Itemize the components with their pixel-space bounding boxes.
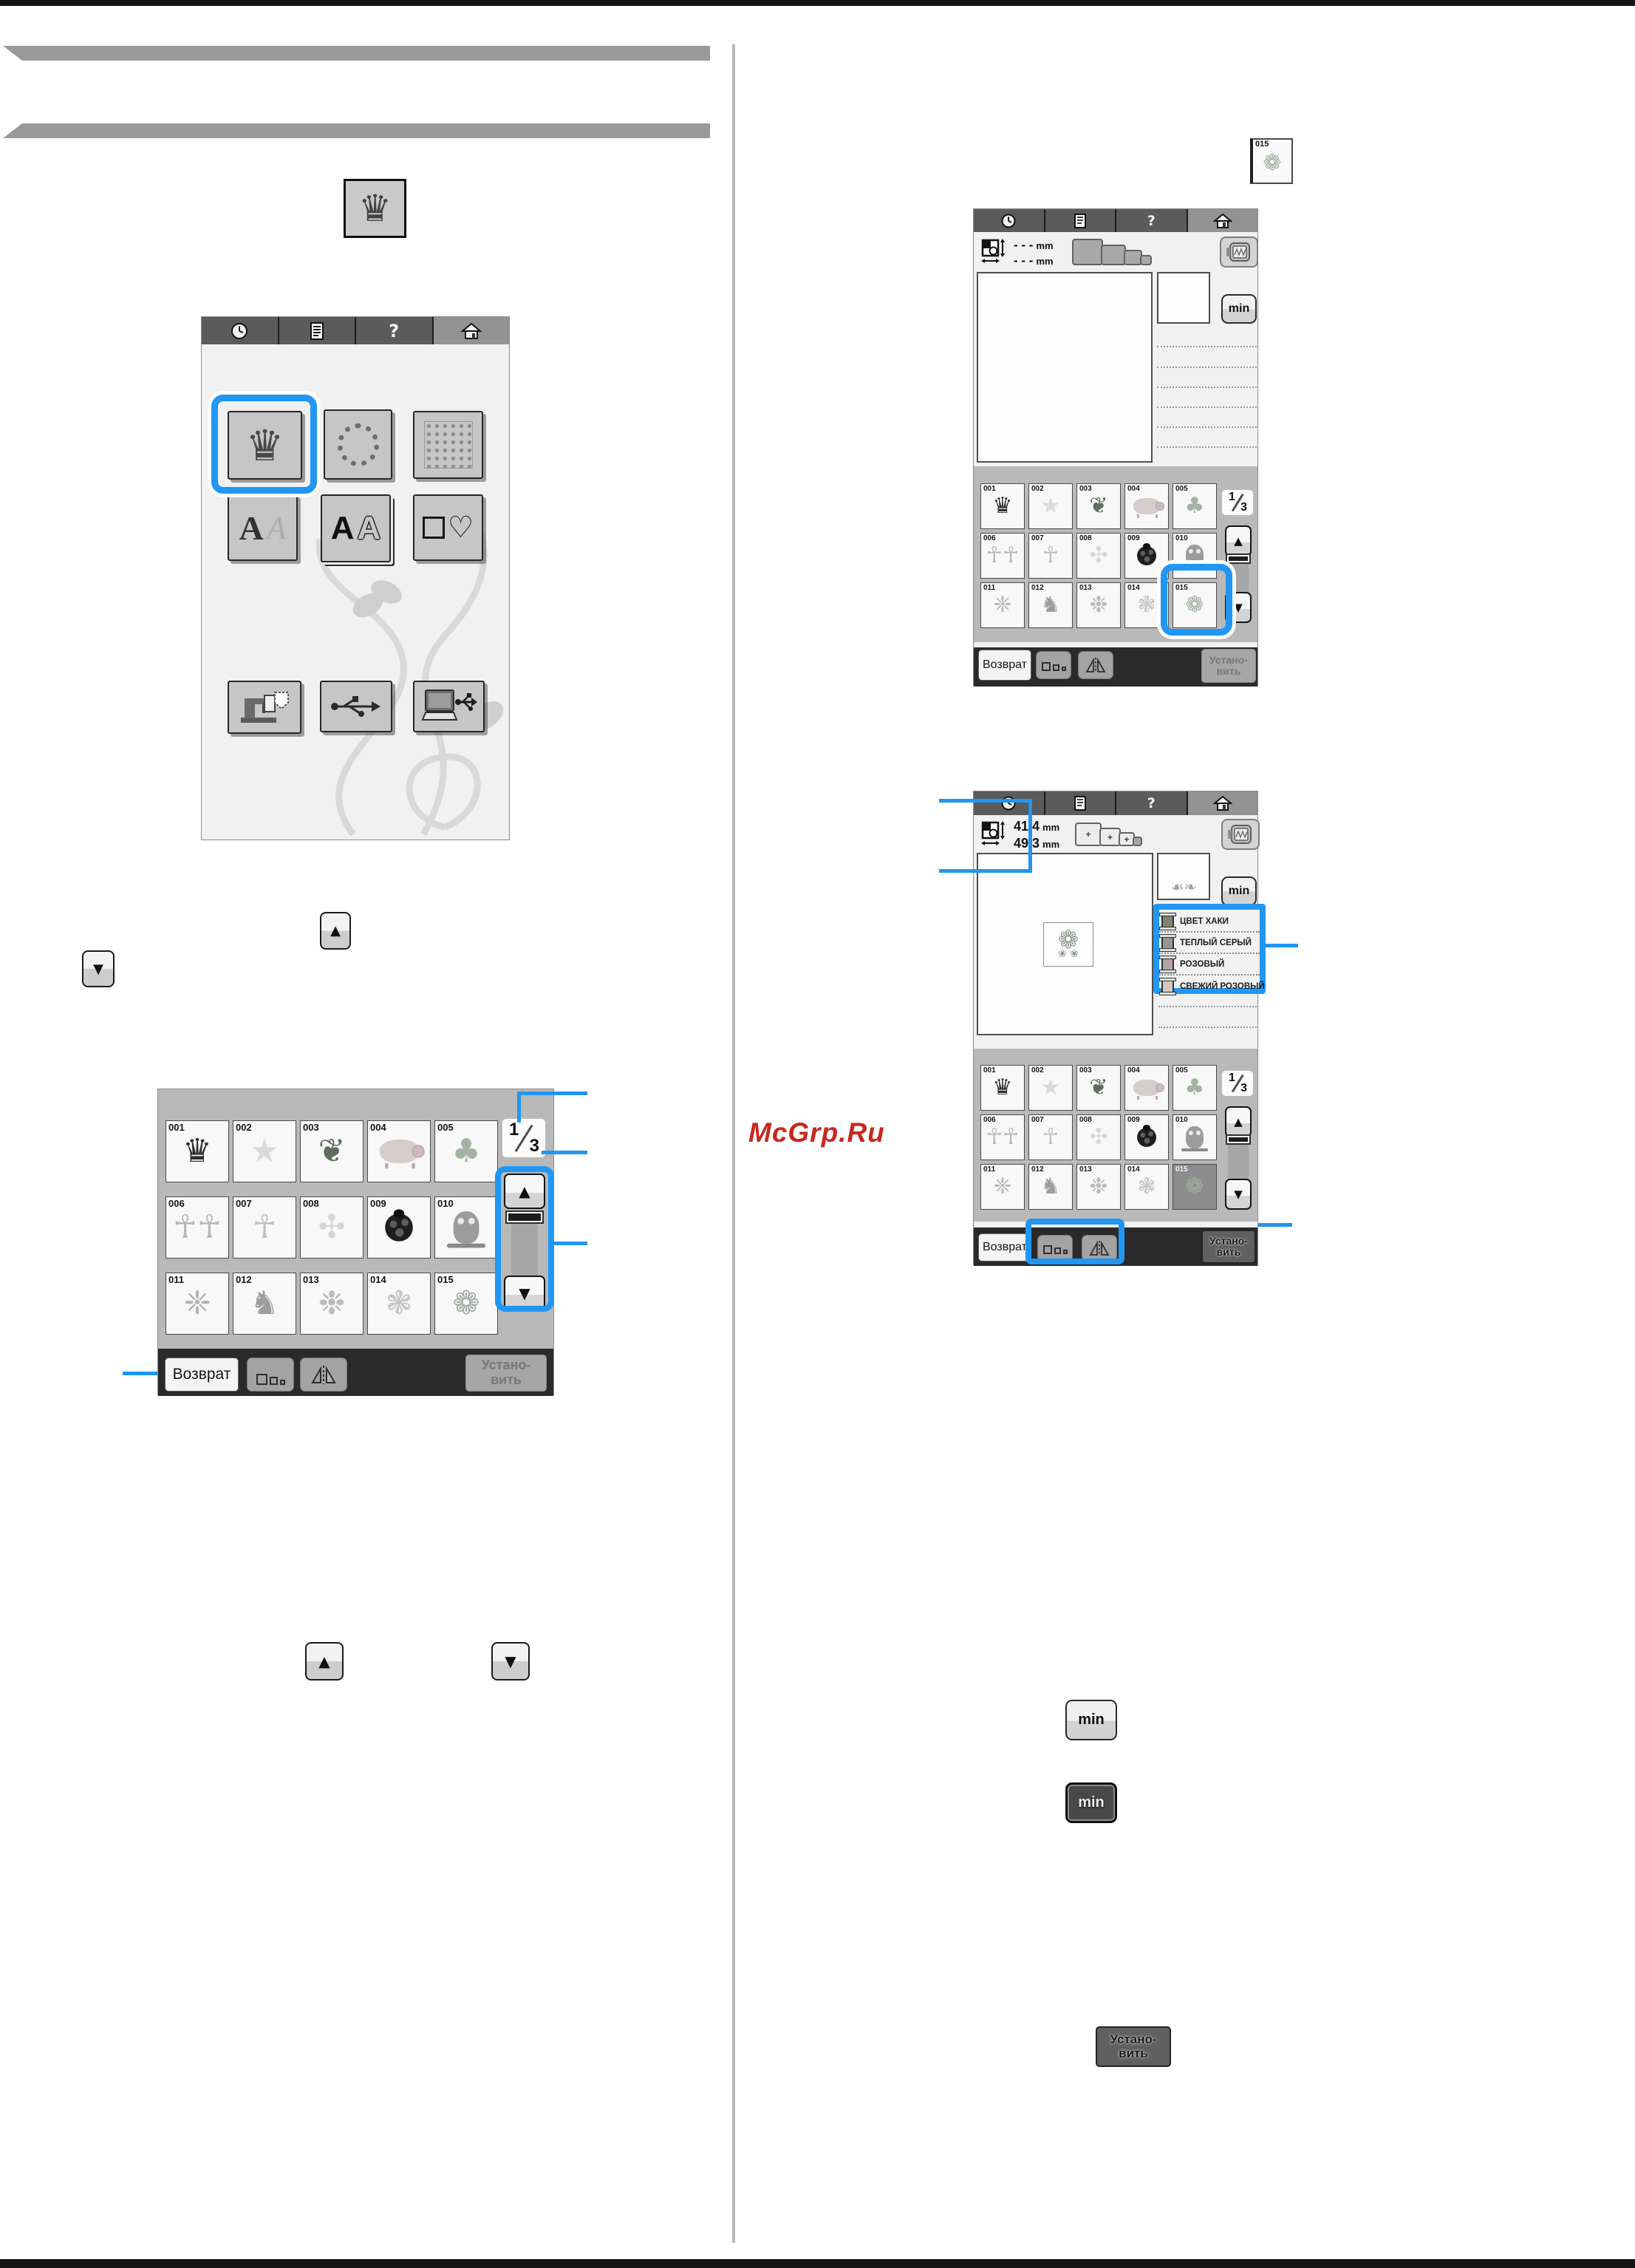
set-button-inline: Устано-вить xyxy=(1096,2026,1171,2067)
pattern-tile-005[interactable]: 005♣ xyxy=(1173,483,1217,529)
tile-number: 005 xyxy=(1175,1066,1188,1075)
pattern-tile-013[interactable]: 013❉ xyxy=(1076,1164,1121,1210)
mirror-icon xyxy=(310,1363,338,1386)
callout-frame-scrollbar xyxy=(495,1166,554,1312)
pattern-tile-005[interactable]: 005♣ xyxy=(1173,1065,1217,1111)
hoop-sizes-indicator: + + + xyxy=(1077,823,1142,846)
pattern-tile-009[interactable]: 009 xyxy=(1124,1114,1169,1160)
size-large-icon xyxy=(256,1374,267,1385)
return-button[interactable]: Возврат xyxy=(978,1233,1031,1261)
set-label-line1: Устано- xyxy=(1110,2033,1156,2047)
column-divider xyxy=(732,44,735,2243)
scroll-up-button[interactable]: ▲ xyxy=(1225,525,1252,556)
pattern-tile-014[interactable]: 014❃ xyxy=(1124,1164,1169,1210)
tile-number: 014 xyxy=(370,1274,386,1285)
thread-row-separator xyxy=(1158,1026,1257,1028)
pattern-tile-006[interactable]: 006☥☥ xyxy=(165,1196,229,1259)
pattern-tile-009[interactable]: 009 xyxy=(367,1196,431,1259)
pattern-tile-002[interactable]: 002★ xyxy=(1028,1065,1073,1111)
saved-patterns-button[interactable] xyxy=(228,681,301,734)
home-icon xyxy=(1213,213,1232,229)
pattern-mini-preview xyxy=(1157,272,1210,324)
screen-pattern-selected: ? 41.4mm 49.3mm + + + ❁ ❀ ❀ ☙❧ min ЦВЕТ … xyxy=(973,791,1258,1265)
clock-icon xyxy=(1000,795,1017,811)
usb-icon xyxy=(329,694,383,719)
size-small-icon xyxy=(1062,667,1066,671)
tile-number: 004 xyxy=(1127,485,1140,493)
embroidery-frame-display-button[interactable] xyxy=(1220,236,1258,268)
height-unit: mm xyxy=(1042,839,1059,850)
hoop-large-icon xyxy=(1101,245,1126,265)
tile-number: 007 xyxy=(1031,1116,1044,1124)
arrow-up-icon: ▲ xyxy=(318,1652,330,1670)
tile-number: 008 xyxy=(1079,534,1092,542)
tile-number: 015 xyxy=(1255,140,1269,149)
thread-color-name: РОЗОВЫЙ xyxy=(1180,960,1224,969)
pattern-preview-area xyxy=(977,272,1153,463)
tile-number: 003 xyxy=(1079,485,1092,493)
tile-number: 005 xyxy=(437,1122,454,1133)
home-icon xyxy=(1213,795,1232,811)
scroll-up-button[interactable]: ▲ xyxy=(1225,1106,1252,1137)
page-current: 1 xyxy=(1229,491,1235,504)
thread-color-row: ТЕПЛЫЙ СЕРЫЙ xyxy=(1159,933,1260,954)
document-icon xyxy=(308,321,326,341)
scroll-down-key-inline: ▼ xyxy=(82,950,115,987)
frame-square-icon xyxy=(423,517,445,539)
embroidery-frame-display-button[interactable] xyxy=(1221,819,1260,850)
wreath-icon xyxy=(338,423,379,466)
thread-row-separator xyxy=(1157,426,1257,428)
scroll-down-button[interactable]: ▼ xyxy=(1225,1179,1252,1210)
page-total: 3 xyxy=(1240,501,1247,514)
pattern-glyph: ♛ xyxy=(993,495,1013,517)
thread-spool-icon xyxy=(1161,936,1174,950)
pattern-glyph: ☥☥ xyxy=(986,545,1020,567)
tile-number: 002 xyxy=(236,1122,252,1133)
tile-number: 013 xyxy=(1079,1165,1092,1174)
tile-number: 006 xyxy=(168,1198,185,1209)
pattern-size-values: 41.4mm 49.3mm xyxy=(1014,818,1059,851)
pattern-glyph: ❁ xyxy=(1185,1176,1204,1198)
pattern-tile-003[interactable]: 003❦ xyxy=(1076,483,1121,529)
thread-spool-icon xyxy=(1161,957,1174,972)
arrow-down-icon: ▼ xyxy=(505,1652,516,1670)
tile-number: 007 xyxy=(1031,534,1044,542)
tile-number: 011 xyxy=(168,1274,184,1285)
computer-connection-button[interactable] xyxy=(413,681,485,732)
width-value: - - - xyxy=(1014,238,1033,252)
callout-line-return xyxy=(123,1372,157,1375)
pattern-glyph: ✣ xyxy=(1089,1126,1107,1148)
pattern-glyph: ❃ xyxy=(1137,1176,1156,1198)
thread-color-list: ЦВЕТ ХАКИТЕПЛЫЙ СЕРЫЙРОЗОВЫЙСВЕЖИЙ РОЗОВ… xyxy=(1159,911,1260,997)
set-button[interactable]: Устано-вить xyxy=(1201,1230,1256,1264)
tile-number: 009 xyxy=(370,1198,386,1209)
arrow-down-icon: ▼ xyxy=(1234,1188,1243,1201)
pattern-tile-010[interactable]: 010 xyxy=(1173,1114,1217,1160)
mirror-button[interactable] xyxy=(300,1358,347,1392)
bold-letter-icon: A xyxy=(331,510,355,547)
tile-number: 003 xyxy=(1079,1066,1092,1075)
pattern-glyph: ❃ xyxy=(386,1287,413,1320)
set-label-line1: Устано- xyxy=(1209,655,1248,666)
tile-number: 006 xyxy=(983,1116,996,1124)
pattern-tile-012[interactable]: 012♞ xyxy=(1028,582,1073,628)
pattern-tile-015[interactable]: 015❁ xyxy=(1173,1164,1217,1210)
page-total: 3 xyxy=(530,1136,539,1157)
pattern-glyph: ★ xyxy=(1041,1077,1061,1099)
page-current: 1 xyxy=(509,1120,519,1140)
pattern-glyph: ❃ xyxy=(1137,594,1156,616)
scrollbar-thumb[interactable] xyxy=(1226,554,1251,564)
home-button[interactable] xyxy=(1188,209,1258,232)
pig-pattern-icon xyxy=(380,1140,418,1163)
min-label: min xyxy=(1078,1794,1105,1811)
pattern-glyph: ♣ xyxy=(1185,495,1205,517)
pattern-glyph: ☥ xyxy=(253,1211,277,1244)
usb-media-button[interactable] xyxy=(320,681,392,732)
size-small-icon xyxy=(280,1380,285,1385)
min-label: min xyxy=(1229,885,1249,898)
thread-color-name: ТЕПЛЫЙ СЕРЫЙ xyxy=(1180,939,1252,947)
set-button[interactable]: Устано-вить xyxy=(465,1355,547,1392)
min-button-pressed-inline: min xyxy=(1065,1782,1117,1823)
help-icon: ? xyxy=(1147,213,1156,229)
callout-line-scrollbar xyxy=(554,1242,587,1245)
callout-line-toolbar xyxy=(939,799,1032,803)
pattern-glyph: ☥☥ xyxy=(173,1211,222,1244)
size-button[interactable] xyxy=(247,1358,294,1392)
help-button[interactable]: ? xyxy=(1116,791,1188,815)
help-button[interactable]: ? xyxy=(356,317,434,344)
pattern-glyph: ☥ xyxy=(1042,545,1059,567)
pattern-glyph: ✣ xyxy=(318,1211,346,1244)
tile-number: 002 xyxy=(1031,1066,1044,1075)
pattern-tile-007[interactable]: 007☥ xyxy=(1028,1114,1073,1160)
serif-letter-icon: A xyxy=(239,508,263,548)
pattern-tile-004[interactable]: 004 xyxy=(1124,1065,1169,1111)
set-label-line2: вить xyxy=(1119,2047,1148,2061)
size-large-icon xyxy=(1042,662,1051,671)
thread-color-row: СВЕЖИЙ РОЗОВЫЙ xyxy=(1159,975,1260,997)
help-icon: ? xyxy=(389,321,399,341)
arrow-up-icon: ▲ xyxy=(330,923,341,939)
home-button[interactable] xyxy=(434,317,510,344)
embroidery-frame-icon xyxy=(1227,824,1254,845)
return-label: Возврат xyxy=(983,1241,1027,1254)
pattern-tile-002[interactable]: 002★ xyxy=(1028,483,1073,529)
screen-pattern-type-select: ? ♛ AA AA ♡ xyxy=(201,316,510,840)
thread-color-name: ЦВЕТ ХАКИ xyxy=(1180,917,1229,926)
page-indicator: 1 3 xyxy=(502,1119,545,1157)
pattern-preview-area: ❁ ❀ ❀ xyxy=(977,853,1153,1035)
section-heading-bar xyxy=(3,46,710,61)
pattern-tile-014[interactable]: 014❃ xyxy=(367,1273,431,1335)
scroll-up-key-inline: ▲ xyxy=(320,912,351,950)
pattern-size-values: - - -mm - - -mm xyxy=(1014,237,1054,269)
pattern-tile-011[interactable]: 011❈ xyxy=(165,1273,229,1335)
help-button[interactable]: ? xyxy=(1116,209,1188,232)
callout-frame-crown-category xyxy=(211,395,317,494)
category-wreath-button[interactable] xyxy=(324,409,392,480)
tile-number: 010 xyxy=(1175,534,1188,542)
pattern-glyph: ♛ xyxy=(182,1135,211,1168)
pattern-tile-011[interactable]: 011❈ xyxy=(980,582,1025,628)
pattern-015-thumbnail-inline: 015 ❁ xyxy=(1250,138,1293,184)
tile-number: 005 xyxy=(1175,485,1188,493)
pattern-tile-004[interactable]: 004 xyxy=(1124,483,1169,529)
callout-line-page-total xyxy=(542,1151,587,1154)
clock-icon xyxy=(230,321,249,341)
selected-pattern-preview: ❁ ❀ ❀ xyxy=(1043,922,1093,967)
category-quilt-button[interactable] xyxy=(413,411,483,479)
clock-button[interactable] xyxy=(974,209,1045,232)
pattern-glyph: ★ xyxy=(1041,495,1061,517)
tile-number: 012 xyxy=(236,1274,252,1285)
tile-number: 015 xyxy=(1175,1165,1188,1174)
stitch-guide-button[interactable] xyxy=(1045,209,1117,232)
pattern-tile-008[interactable]: 008✣ xyxy=(1076,533,1121,579)
pattern-size-icon xyxy=(981,239,1008,265)
page-indicator: 13 xyxy=(1222,490,1253,515)
machine-toolbar: ? xyxy=(202,317,509,344)
embroidery-frame-icon xyxy=(1226,242,1252,262)
thread-row-separator xyxy=(1157,367,1257,368)
page-top-rule xyxy=(0,0,1635,6)
tile-number: 014 xyxy=(1127,584,1140,592)
width-value: 41.4 xyxy=(1014,819,1040,834)
min-label: min xyxy=(1078,1712,1105,1729)
callout-line-page-top-vertical xyxy=(517,1092,521,1123)
pattern-glyph: ❦ xyxy=(1089,495,1107,517)
tile-number: 010 xyxy=(437,1198,454,1209)
callout-frame-edit-buttons xyxy=(1025,1219,1124,1264)
pattern-glyph: ★ xyxy=(250,1135,279,1168)
pattern-tile-006[interactable]: 006☥☥ xyxy=(980,533,1025,579)
tile-number: 008 xyxy=(1079,1116,1092,1124)
home-icon xyxy=(460,321,482,341)
hoop-tiny-icon xyxy=(1133,837,1142,846)
height-unit: mm xyxy=(1036,256,1053,267)
pattern-glyph-detail: ❀ ❀ xyxy=(1058,950,1079,958)
callout-frame-thread-colors: ЦВЕТ ХАКИТЕПЛЫЙ СЕРЫЙРОЗОВЫЙСВЕЖИЙ РОЗОВ… xyxy=(1153,904,1266,994)
thread-row-separator xyxy=(1157,446,1257,448)
thread-color-row: ЦВЕТ ХАКИ xyxy=(1159,911,1260,933)
crown-pattern-key-inline: ♛ xyxy=(344,179,406,238)
category-fancy-letters-button[interactable]: AA xyxy=(228,494,298,561)
tile-number: 009 xyxy=(1127,534,1140,542)
pattern-tile-001[interactable]: 001♛ xyxy=(980,1065,1025,1111)
hoop-fits-mark: + xyxy=(1107,832,1113,842)
pattern-tile-013[interactable]: 013❉ xyxy=(1076,582,1121,628)
pattern-tile-013[interactable]: 013❉ xyxy=(300,1273,363,1335)
hoop-large-icon: + xyxy=(1075,823,1102,846)
home-button[interactable] xyxy=(1188,791,1258,815)
tile-number: 012 xyxy=(1031,584,1044,592)
tile-number: 007 xyxy=(236,1198,252,1209)
bug-pattern-icon xyxy=(385,1213,413,1242)
pattern-glyph: ❈ xyxy=(993,594,1011,616)
pattern-tile-002[interactable]: 002★ xyxy=(233,1120,296,1182)
bug-pattern-icon xyxy=(1137,1128,1156,1147)
pattern-tile-007[interactable]: 007☥ xyxy=(233,1196,296,1259)
pattern-glyph: ❉ xyxy=(1089,1176,1107,1198)
owl-pattern-icon xyxy=(1186,1126,1204,1148)
arrow-down-icon: ▼ xyxy=(93,961,103,977)
tile-number: 013 xyxy=(1079,584,1092,592)
tile-number: 009 xyxy=(1127,1116,1140,1124)
tile-number: 006 xyxy=(983,534,996,542)
thread-row-separator xyxy=(1157,386,1257,388)
return-label: Возврат xyxy=(983,658,1027,672)
width-unit: mm xyxy=(1036,240,1053,251)
pattern-glyph: ☥ xyxy=(1042,1126,1059,1148)
pattern-grid: 001♛002★003❦004005♣006☥☥007☥008✣00901001… xyxy=(980,1065,1217,1210)
pattern-glyph: ❈ xyxy=(993,1176,1011,1198)
thread-row-separator xyxy=(1157,346,1257,347)
pattern-tile-003[interactable]: 003❦ xyxy=(300,1120,363,1182)
pattern-size-icon xyxy=(981,821,1008,848)
pattern-glyph: ♞ xyxy=(1041,1176,1061,1198)
scrollbar-thumb[interactable] xyxy=(1226,1134,1251,1145)
owl-pattern-icon xyxy=(454,1211,479,1244)
category-frames-button[interactable]: ♡ xyxy=(413,494,483,561)
tile-number: 012 xyxy=(1031,1165,1044,1174)
pattern-glyph: ♣ xyxy=(1185,1077,1205,1099)
thread-color-name: СВЕЖИЙ РОЗОВЫЙ xyxy=(1180,982,1265,991)
callout-line-thread-colors xyxy=(1265,944,1298,947)
mirror-button[interactable] xyxy=(1078,651,1113,679)
pattern-glyph: ❈ xyxy=(184,1287,211,1320)
manual-page: { "accent": "#2196f3", "watermark": { "t… xyxy=(0,0,1635,2268)
pattern-tile-012[interactable]: 012♞ xyxy=(233,1273,296,1335)
pattern-tile-015[interactable]: 015❁ xyxy=(434,1273,498,1335)
height-value: - - - xyxy=(1014,253,1033,268)
frame-heart-icon: ♡ xyxy=(448,513,474,542)
pig-pattern-icon xyxy=(1133,498,1160,514)
screen-pattern-select-empty: ? - - -mm - - -mm min 001♛002★003❦004005… xyxy=(973,208,1258,686)
return-label: Возврат xyxy=(173,1366,231,1383)
set-label-line1: Устано- xyxy=(1209,1236,1248,1247)
hoop-fits-mark: + xyxy=(1085,829,1090,840)
pattern-mini-preview: ☙❧ xyxy=(1157,853,1210,900)
tile-number: 001 xyxy=(983,485,996,493)
pattern-tile-004[interactable]: 004 xyxy=(367,1120,431,1182)
tile-number: 011 xyxy=(983,1165,995,1174)
min-button[interactable]: min xyxy=(1221,876,1257,906)
pattern-tile-012[interactable]: 012♞ xyxy=(1028,1164,1073,1210)
pattern-tile-005[interactable]: 005♣ xyxy=(434,1120,498,1182)
height-value: 49.3 xyxy=(1014,836,1040,851)
callout-line-page-top xyxy=(517,1092,587,1095)
pattern-glyph: ❦ xyxy=(318,1135,346,1168)
hoop-sizes-indicator xyxy=(1074,239,1152,265)
machine-toolbar: ? xyxy=(974,209,1257,232)
pattern-tile-010[interactable]: 010 xyxy=(434,1196,498,1259)
pattern-tile-008[interactable]: 008✣ xyxy=(300,1196,363,1259)
pattern-glyph: ❁ xyxy=(1058,930,1079,950)
stitch-guide-button[interactable] xyxy=(1045,791,1117,815)
arrow-up-icon: ▲ xyxy=(1234,534,1243,548)
tile-number: 014 xyxy=(1127,1165,1140,1174)
tile-number: 015 xyxy=(437,1274,454,1285)
script-letter-icon: A xyxy=(267,509,287,547)
laptop-usb-icon xyxy=(421,687,477,726)
arrow-down-icon: ▼ xyxy=(1234,601,1243,614)
set-label-line2: вить xyxy=(1217,666,1241,677)
scroll-down-key-inline: ▼ xyxy=(491,1642,530,1680)
clock-button[interactable] xyxy=(202,317,279,344)
pattern-glyph: ☥☥ xyxy=(986,1126,1020,1148)
pattern-tile-003[interactable]: 003❦ xyxy=(1076,1065,1121,1111)
width-unit: mm xyxy=(1042,822,1059,833)
machine-toolbar: ? xyxy=(974,791,1257,815)
mirror-icon xyxy=(1085,656,1107,674)
category-letters-button[interactable]: AA xyxy=(321,494,391,562)
pattern-glyph: ❉ xyxy=(318,1287,346,1320)
tile-number: 013 xyxy=(303,1274,319,1285)
stitch-guide-button[interactable] xyxy=(279,317,357,344)
pattern-glyph: ❁ xyxy=(453,1287,480,1320)
pattern-glyph: ❁ xyxy=(1263,152,1281,174)
callout-line-size-display xyxy=(939,869,1032,873)
return-button[interactable]: Возврат xyxy=(978,650,1031,681)
pattern-glyph: ❉ xyxy=(1089,594,1107,616)
tile-number: 002 xyxy=(1031,485,1044,493)
bottom-action-bar: Возврат Устано-вить xyxy=(974,647,1257,687)
pig-pattern-icon xyxy=(1133,1080,1160,1096)
set-label-line1: Устано- xyxy=(482,1358,531,1373)
pattern-glyph: ♞ xyxy=(1041,594,1061,616)
pattern-tile-001[interactable]: 001♛ xyxy=(165,1120,229,1182)
crown-icon: ♛ xyxy=(358,190,392,227)
page-bottom-rule xyxy=(0,2259,1635,2268)
thread-spool-icon xyxy=(1161,979,1174,994)
pattern-grid: 001♛002★003❦004005♣006☥☥007☥008✣00901001… xyxy=(165,1120,498,1335)
return-button[interactable]: Возврат xyxy=(165,1358,239,1392)
scroll-up-key-inline: ▲ xyxy=(305,1642,344,1680)
pattern-tile-006[interactable]: 006☥☥ xyxy=(980,1114,1025,1160)
set-button[interactable]: Устано-вить xyxy=(1201,649,1256,683)
min-button[interactable]: min xyxy=(1221,294,1257,324)
callout-line-vertical xyxy=(1028,799,1032,873)
arrow-up-icon: ▲ xyxy=(1234,1115,1243,1128)
size-button[interactable] xyxy=(1036,651,1071,679)
thread-row-separator xyxy=(1157,406,1257,408)
page-indicator: 13 xyxy=(1222,1071,1253,1096)
pattern-tile-001[interactable]: 001♛ xyxy=(980,483,1025,529)
bottom-action-bar: Возврат Устано-вить xyxy=(158,1349,553,1396)
hoop-fits-mark: + xyxy=(1124,834,1129,845)
size-medium-icon xyxy=(270,1377,278,1385)
callout-line-edit-buttons xyxy=(1258,1223,1292,1227)
pattern-tile-007[interactable]: 007☥ xyxy=(1028,533,1073,579)
watermark: McGrp.Ru xyxy=(748,1117,885,1148)
thread-spool-icon xyxy=(1161,914,1174,929)
set-label-line2: вить xyxy=(491,1373,522,1388)
pattern-tile-011[interactable]: 011❈ xyxy=(980,1164,1025,1210)
thread-color-row: РОЗОВЫЙ xyxy=(1159,954,1260,975)
machine-memory-icon xyxy=(238,688,291,726)
document-icon xyxy=(1073,213,1088,229)
clock-button[interactable] xyxy=(974,791,1045,815)
tile-number: 001 xyxy=(168,1122,185,1133)
quilt-pattern-icon xyxy=(424,421,473,469)
pattern-tile-008[interactable]: 008✣ xyxy=(1076,1114,1121,1160)
help-icon: ? xyxy=(1147,795,1156,811)
pattern-glyph: ✣ xyxy=(1089,545,1107,567)
